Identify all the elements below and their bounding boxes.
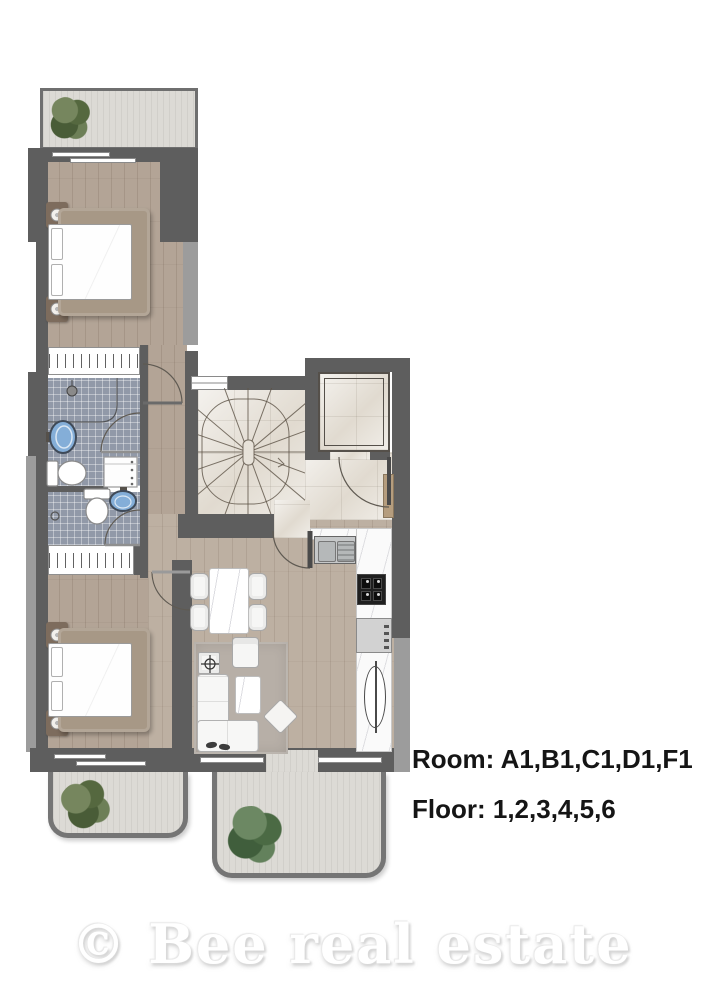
room-label: Room: A1,B1,C1,D1,F1: [412, 744, 693, 775]
toilet: [47, 461, 86, 486]
washbasin: [46, 421, 76, 453]
toilet: [84, 489, 110, 524]
plan-overlay: [0, 0, 704, 1000]
watermark: © Bee real estate: [71, 912, 632, 976]
door-swing: [101, 364, 389, 610]
floorplan-canvas: Room: A1,B1,C1,D1,F1 Floor: 1,2,3,4,5,6 …: [0, 0, 704, 1000]
shower-head-icon: [67, 386, 77, 396]
shower: [48, 378, 117, 422]
floor-label: Floor: 1,2,3,4,5,6: [412, 794, 616, 825]
washbasin: [110, 487, 136, 511]
faucet-icon: [51, 512, 59, 520]
washing-machine: [104, 457, 137, 487]
door-leaf: [101, 403, 389, 572]
